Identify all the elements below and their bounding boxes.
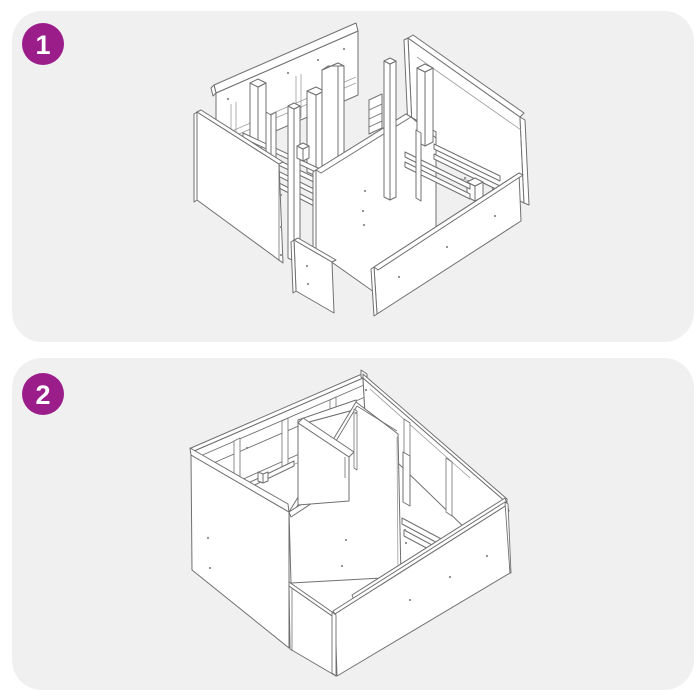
svg-text:1: 1 xyxy=(35,30,50,60)
svg-text:2: 2 xyxy=(35,380,50,410)
